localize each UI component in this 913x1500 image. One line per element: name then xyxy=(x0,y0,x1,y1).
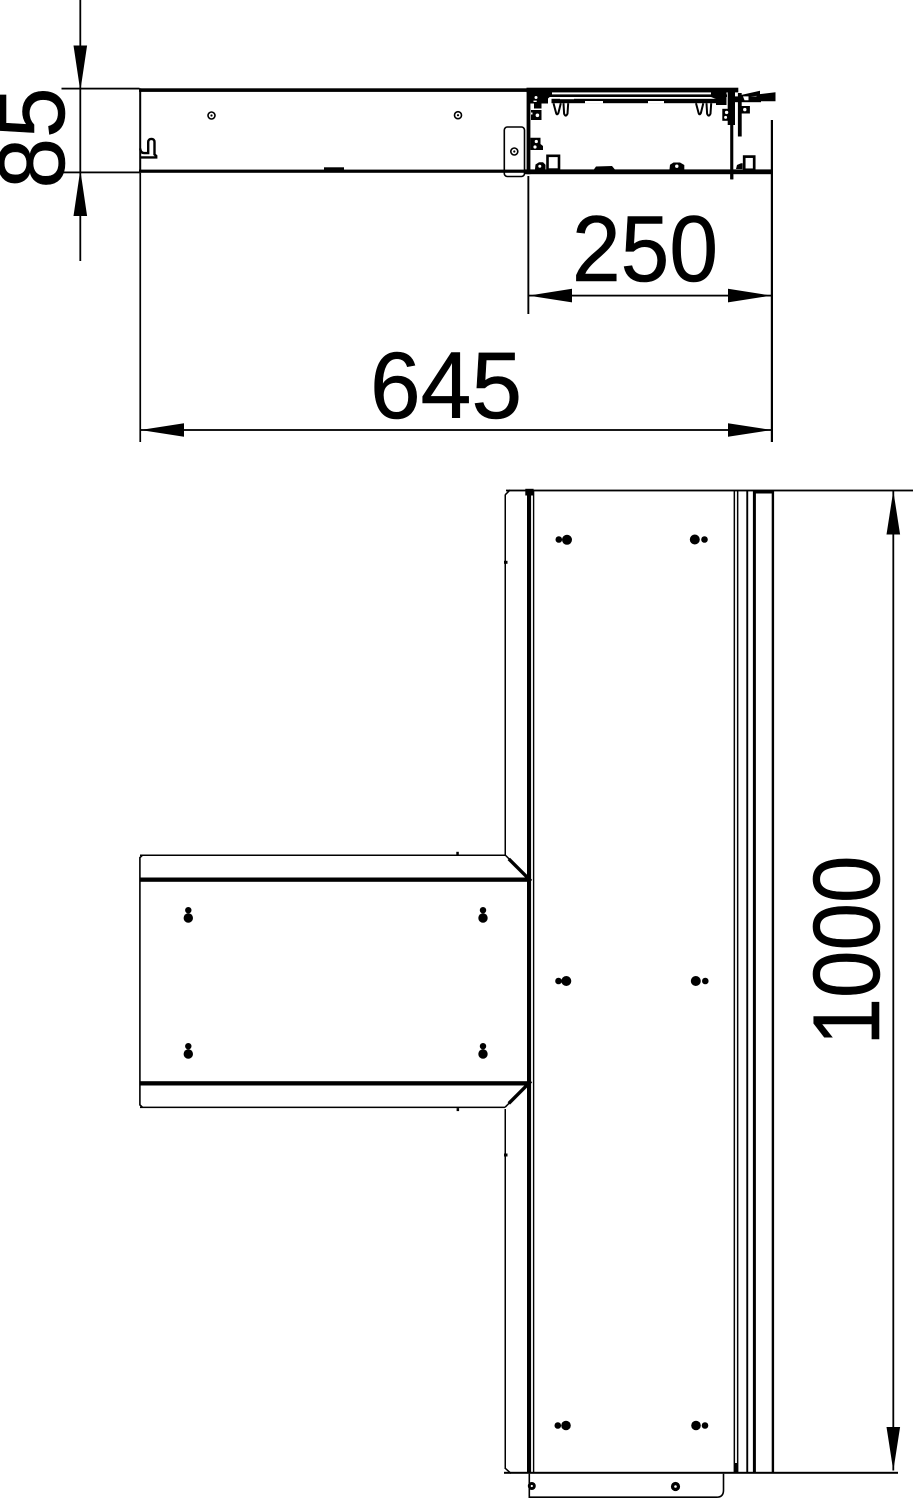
svg-text:85: 85 xyxy=(0,88,85,189)
svg-text:250: 250 xyxy=(572,196,718,301)
svg-text:645: 645 xyxy=(370,333,522,439)
svg-text:1000: 1000 xyxy=(794,856,900,1046)
